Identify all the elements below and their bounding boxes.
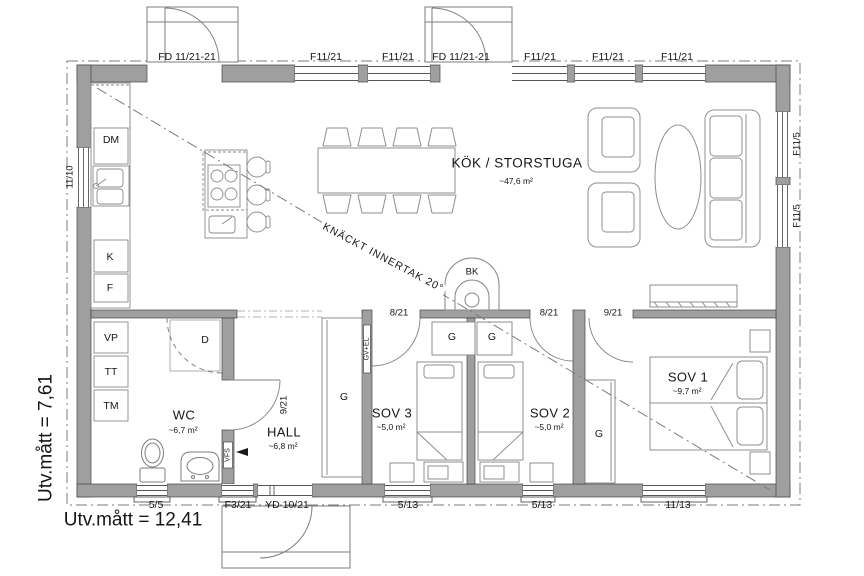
bed-sov1 (650, 330, 770, 474)
beam-lines (237, 311, 322, 317)
window-label-f1121: F11/21 (382, 52, 414, 63)
fixture-label-f: F (107, 283, 113, 294)
sideboard (650, 285, 737, 307)
fixture-label-k: K (106, 252, 113, 263)
dim-label-width: Utv.mått = 12,41 (64, 511, 203, 530)
door-label-821: 8/21 (390, 308, 409, 318)
shower (167, 318, 222, 373)
fixture-label-vp: VP (104, 333, 118, 344)
fixture-label-bk: BK (466, 267, 479, 277)
room-area-sov2: ~5,0 m² (534, 423, 563, 432)
window-label-513: 5/13 (532, 500, 552, 511)
fixture-label-shower: D (201, 335, 209, 346)
washbasin (181, 452, 219, 481)
bar-stools (247, 157, 270, 232)
wardrobe-label: G (488, 332, 496, 343)
room-area-sov3: ~5,0 m² (376, 423, 405, 432)
room-label-sov1: SOV 1 (668, 371, 708, 384)
dim-label-height: Utv.mått = 7,61 (37, 374, 56, 502)
door-label-yd: YD 10/21 (265, 500, 309, 511)
room-label-sov3: SOV 3 (372, 407, 412, 420)
shaft-label-gvel: GV+EL (364, 338, 371, 361)
kitchen-counter (91, 83, 130, 308)
room-label-wc: WC (173, 409, 195, 422)
window-label-1110: 11/10 (65, 165, 75, 188)
room-label-sov2: SOV 2 (530, 407, 570, 420)
toilet (140, 439, 165, 482)
window-label-513: 5/13 (398, 500, 418, 511)
wardrobe-label: G (448, 332, 456, 343)
wardrobe-label: G (595, 429, 603, 440)
fixture-label-tm: TM (103, 401, 118, 412)
window-label-f115: F11/5 (792, 204, 802, 228)
window-label-1113: 11/13 (665, 500, 691, 511)
door-label-921: 9/21 (604, 308, 623, 318)
shaft-label-vfs: VFS (225, 448, 232, 462)
fixture-label-tt: TT (105, 367, 118, 378)
wardrobe-label: G (340, 392, 348, 403)
floor-plan: FD 11/21-21 F11/21 F11/21 FD 11/21-21 F1… (0, 0, 864, 576)
kitchen-island (203, 150, 247, 238)
window-label-f1121: F11/21 (524, 52, 556, 63)
room-area-sov1: ~9,7 m² (672, 387, 701, 396)
room-area-wc: ~6,7 m² (168, 426, 197, 435)
door-label-fd-left: FD 11/21-21 (158, 52, 216, 63)
door-label-921: 9/21 (279, 396, 289, 415)
room-area-kok: ~47,6 m² (499, 177, 533, 186)
entry-porch (222, 506, 350, 568)
sofa (705, 110, 760, 247)
armchair (588, 183, 640, 247)
door-label-fd-mid: FD 11/21-21 (432, 52, 490, 63)
room-area-hall: ~6,8 m² (268, 442, 297, 451)
door-label-821: 8/21 (540, 308, 559, 318)
room-label-hall: HALL (267, 426, 301, 439)
armchair (588, 108, 640, 172)
window-label-f115: F11/5 (792, 132, 802, 156)
window-label-f1121: F11/21 (661, 52, 693, 63)
dining-table (318, 128, 456, 213)
window-label-f1121: F11/21 (310, 52, 342, 63)
window-label-f321: F3/21 (225, 500, 252, 511)
fixture-label-dm: DM (103, 135, 119, 146)
window-label-f1121: F11/21 (592, 52, 624, 63)
room-label-kok: KÖK / STORSTUGA (451, 156, 582, 170)
coffee-table (655, 125, 701, 229)
